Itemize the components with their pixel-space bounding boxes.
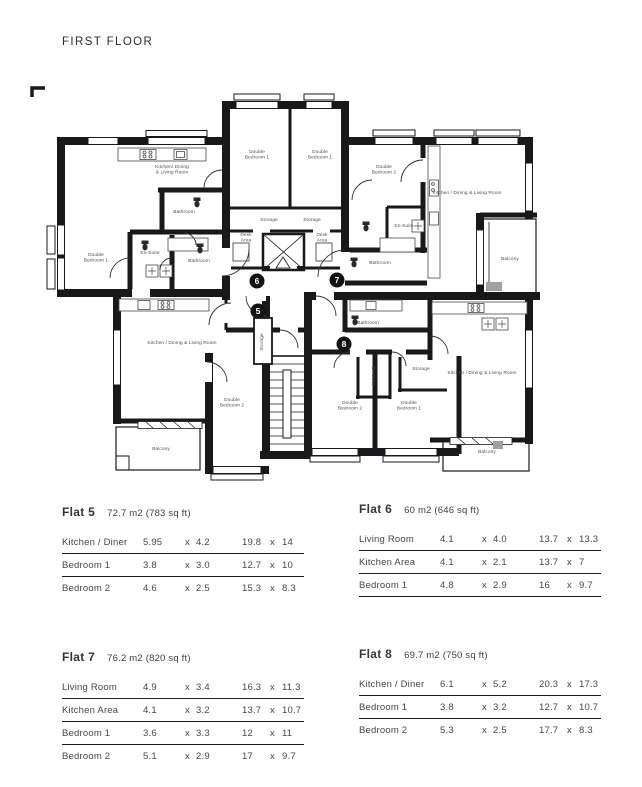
room-name: Living Room — [359, 534, 440, 545]
times-separator: x — [185, 705, 196, 716]
flat-6-section: Flat 660 m2 (646 sq ft) Living Room4.1x4… — [359, 502, 617, 597]
dimension-value: 2.1 — [493, 557, 539, 568]
times-separator: x — [567, 580, 579, 591]
times-separator: x — [482, 580, 493, 591]
dimension-value: 4.8 — [440, 580, 482, 591]
flat-number-text: 5 — [256, 306, 261, 316]
dimension-value: 3.8 — [143, 560, 185, 571]
dimension-value: 10.7 — [282, 705, 304, 716]
table-row: Bedroom 25.1x2.917x9.7 — [62, 745, 304, 767]
dimension-value: 8.3 — [579, 725, 601, 736]
room-name: Bedroom 1 — [359, 580, 440, 591]
room-label: Storage — [303, 217, 321, 223]
room-name: Bedroom 2 — [62, 583, 143, 594]
flat-number-text: 6 — [255, 276, 260, 286]
dimension-value: 12 — [242, 728, 270, 739]
times-separator: x — [185, 751, 196, 762]
dimension-value: 20.3 — [539, 679, 567, 690]
room-name: Kitchen / Diner — [62, 537, 143, 548]
dimension-value: 8.3 — [282, 583, 304, 594]
flat-8-section: Flat 869.7 m2 (750 sq ft) Kitchen / Dine… — [359, 647, 617, 741]
dimension-value: 9.7 — [282, 751, 304, 762]
times-separator: x — [567, 725, 579, 736]
times-separator: x — [270, 751, 282, 762]
dimension-value: 4.1 — [143, 705, 185, 716]
dimension-value: 2.5 — [196, 583, 242, 594]
dimension-value: 13.7 — [539, 557, 567, 568]
room-label: DoubleBedroom 1 — [84, 252, 109, 263]
room-label: DoubleBedroom 2 — [338, 400, 363, 411]
dimension-value: 4.6 — [143, 583, 185, 594]
flat-7-section: Flat 776.2 m2 (820 sq ft) Living Room4.9… — [62, 650, 320, 767]
flat-header: Flat 869.7 m2 (750 sq ft) — [359, 647, 617, 661]
floorplan-page: { "title": "FIRST FLOOR", "table_separat… — [0, 0, 642, 787]
times-separator: x — [185, 560, 196, 571]
dimension-value: 13.7 — [242, 705, 270, 716]
times-separator: x — [482, 725, 493, 736]
flat-header: Flat 572.7 m2 (783 sq ft) — [62, 505, 320, 519]
lift — [263, 234, 304, 271]
room-label: Kitchen / Dining & Living Room — [432, 190, 501, 196]
dimension-value: 4.9 — [143, 682, 185, 693]
table-row: Bedroom 13.8x3.012.7x10 — [62, 554, 304, 577]
room-label: DoubleBedroom 1 — [308, 149, 333, 160]
dimension-value: 6.1 — [440, 679, 482, 690]
flat-table: Living Room4.9x3.416.3x11.3Kitchen Area4… — [62, 676, 304, 767]
dimension-value: 17.7 — [539, 725, 567, 736]
flat-area: 76.2 m2 (820 sq ft) — [107, 653, 191, 664]
flat-area: 69.7 m2 (750 sq ft) — [404, 650, 488, 661]
table-row: Kitchen / Diner6.1x5.220.3x17.3 — [359, 673, 601, 696]
dimension-value: 17 — [242, 751, 270, 762]
room-label: Bathroom — [173, 209, 195, 215]
dimension-value: 3.3 — [196, 728, 242, 739]
times-separator: x — [482, 557, 493, 568]
times-separator: x — [270, 583, 282, 594]
room-label: En-Suite — [370, 366, 376, 385]
room-label: DeskArea — [240, 232, 252, 243]
dimension-value: 5.95 — [143, 537, 185, 548]
flat-name: Flat 8 — [359, 647, 392, 661]
times-separator: x — [270, 682, 282, 693]
room-label: En-Suite — [140, 250, 159, 256]
times-separator: x — [567, 679, 579, 690]
dimension-value: 3.4 — [196, 682, 242, 693]
room-label: Storage — [412, 366, 430, 372]
times-separator: x — [567, 702, 579, 713]
dimension-value: 4.0 — [493, 534, 539, 545]
dimension-value: 3.6 — [143, 728, 185, 739]
room-label: Kitchen / Dining & Living Room — [147, 340, 216, 346]
table-row: Bedroom 13.8x3.212.7x10.7 — [359, 696, 601, 719]
dimension-value: 13.3 — [579, 534, 601, 545]
dimension-value: 19.8 — [242, 537, 270, 548]
flat-header: Flat 660 m2 (646 sq ft) — [359, 502, 617, 516]
flat-number-text: 7 — [335, 275, 340, 285]
dimension-value: 2.5 — [493, 725, 539, 736]
room-name: Bedroom 1 — [359, 702, 440, 713]
room-name: Living Room — [62, 682, 143, 693]
flat-table: Living Room4.1x4.013.7x13.3Kitchen Area4… — [359, 528, 601, 597]
dimension-value: 2.9 — [493, 580, 539, 591]
dimension-value: 12.7 — [539, 702, 567, 713]
dimension-value: 11.3 — [282, 682, 304, 693]
dimension-value: 14 — [282, 537, 304, 548]
table-row: Kitchen Area4.1x3.213.7x10.7 — [62, 699, 304, 722]
times-separator: x — [482, 702, 493, 713]
dimension-value: 3.2 — [493, 702, 539, 713]
floor-plan-svg: Kitchen/ Dining& Living RoomBathroomDoub… — [0, 0, 642, 500]
times-separator: x — [567, 557, 579, 568]
room-label: Storage — [259, 333, 265, 351]
room-label: DoubleBedroom 1 — [397, 400, 422, 411]
times-separator: x — [482, 679, 493, 690]
room-label: Bathroom — [357, 320, 379, 326]
times-separator: x — [185, 537, 196, 548]
room-name: Kitchen Area — [359, 557, 440, 568]
dimension-value: 7 — [579, 557, 601, 568]
flat-table: Kitchen / Diner5.95x4.219.8x14Bedroom 13… — [62, 531, 304, 599]
table-row: Kitchen Area4.1x2.113.7x7 — [359, 551, 601, 574]
times-separator: x — [482, 534, 493, 545]
staircase — [268, 356, 306, 452]
dimension-value: 16 — [539, 580, 567, 591]
room-label: Kitchen/ Dining& Living Room — [155, 164, 189, 175]
times-separator: x — [270, 560, 282, 571]
flat-table: Kitchen / Diner6.1x5.220.3x17.3Bedroom 1… — [359, 673, 601, 741]
times-separator: x — [270, 728, 282, 739]
dimension-value: 3.2 — [196, 705, 242, 716]
times-separator: x — [270, 705, 282, 716]
times-separator: x — [567, 534, 579, 545]
table-row: Bedroom 25.3x2.517.7x8.3 — [359, 719, 601, 741]
table-row: Kitchen / Diner5.95x4.219.8x14 — [62, 531, 304, 554]
room-label: Balcony — [152, 446, 170, 452]
times-separator: x — [185, 682, 196, 693]
flat-area: 72.7 m2 (783 sq ft) — [107, 508, 191, 519]
table-row: Living Room4.9x3.416.3x11.3 — [62, 676, 304, 699]
room-name: Bedroom 1 — [62, 728, 143, 739]
dimension-value: 10 — [282, 560, 304, 571]
room-label: Kitchen / Dining & Living Room — [447, 370, 516, 376]
flat-header: Flat 776.2 m2 (820 sq ft) — [62, 650, 320, 664]
room-name: Bedroom 1 — [62, 560, 143, 571]
dimension-value: 5.2 — [493, 679, 539, 690]
room-label: DoubleBedroom 1 — [245, 149, 270, 160]
room-name: Bedroom 2 — [62, 751, 143, 762]
room-label: Storage — [260, 217, 278, 223]
times-separator: x — [185, 583, 196, 594]
table-row: Living Room4.1x4.013.7x13.3 — [359, 528, 601, 551]
dimension-value: 13.7 — [539, 534, 567, 545]
dimension-value: 4.2 — [196, 537, 242, 548]
dimension-value: 9.7 — [579, 580, 601, 591]
table-row: Bedroom 13.6x3.312x11 — [62, 722, 304, 745]
dimension-value: 3.8 — [440, 702, 482, 713]
flat-area: 60 m2 (646 sq ft) — [404, 505, 479, 516]
flat-5-section: Flat 572.7 m2 (783 sq ft) Kitchen / Dine… — [62, 505, 320, 599]
dimension-value: 4.1 — [440, 557, 482, 568]
dimension-value: 3.0 — [196, 560, 242, 571]
room-label: En-Suite — [394, 223, 413, 229]
dimension-value: 16.3 — [242, 682, 270, 693]
flat-name: Flat 6 — [359, 502, 392, 516]
flat-number-text: 8 — [342, 339, 347, 349]
dimension-value: 10.7 — [579, 702, 601, 713]
dimension-value: 2.9 — [196, 751, 242, 762]
dimension-value: 17.3 — [579, 679, 601, 690]
dimension-value: 5.1 — [143, 751, 185, 762]
room-name: Kitchen / Diner — [359, 679, 440, 690]
times-separator: x — [270, 537, 282, 548]
room-label: Balcony — [501, 256, 519, 262]
room-label: DoubleBedroom 2 — [372, 164, 397, 175]
dimension-value: 15.3 — [242, 583, 270, 594]
room-name: Bedroom 2 — [359, 725, 440, 736]
flat-name: Flat 5 — [62, 505, 95, 519]
table-row: Bedroom 24.6x2.515.3x8.3 — [62, 577, 304, 599]
flat-name: Flat 7 — [62, 650, 95, 664]
room-label: DeskArea — [316, 232, 328, 243]
room-name: Kitchen Area — [62, 705, 143, 716]
room-label: DoubleBedroom 2 — [220, 397, 245, 408]
dimension-value: 4.1 — [440, 534, 482, 545]
floor-plan: Kitchen/ Dining& Living RoomBathroomDoub… — [0, 0, 642, 500]
dimension-value: 11 — [282, 728, 304, 739]
dimension-value: 5.3 — [440, 725, 482, 736]
table-row: Bedroom 14.8x2.916x9.7 — [359, 574, 601, 597]
times-separator: x — [185, 728, 196, 739]
room-label: Bathroom — [188, 258, 210, 264]
room-label: Balcony — [478, 449, 496, 455]
dimension-value: 12.7 — [242, 560, 270, 571]
room-label: Bathroom — [369, 260, 391, 266]
